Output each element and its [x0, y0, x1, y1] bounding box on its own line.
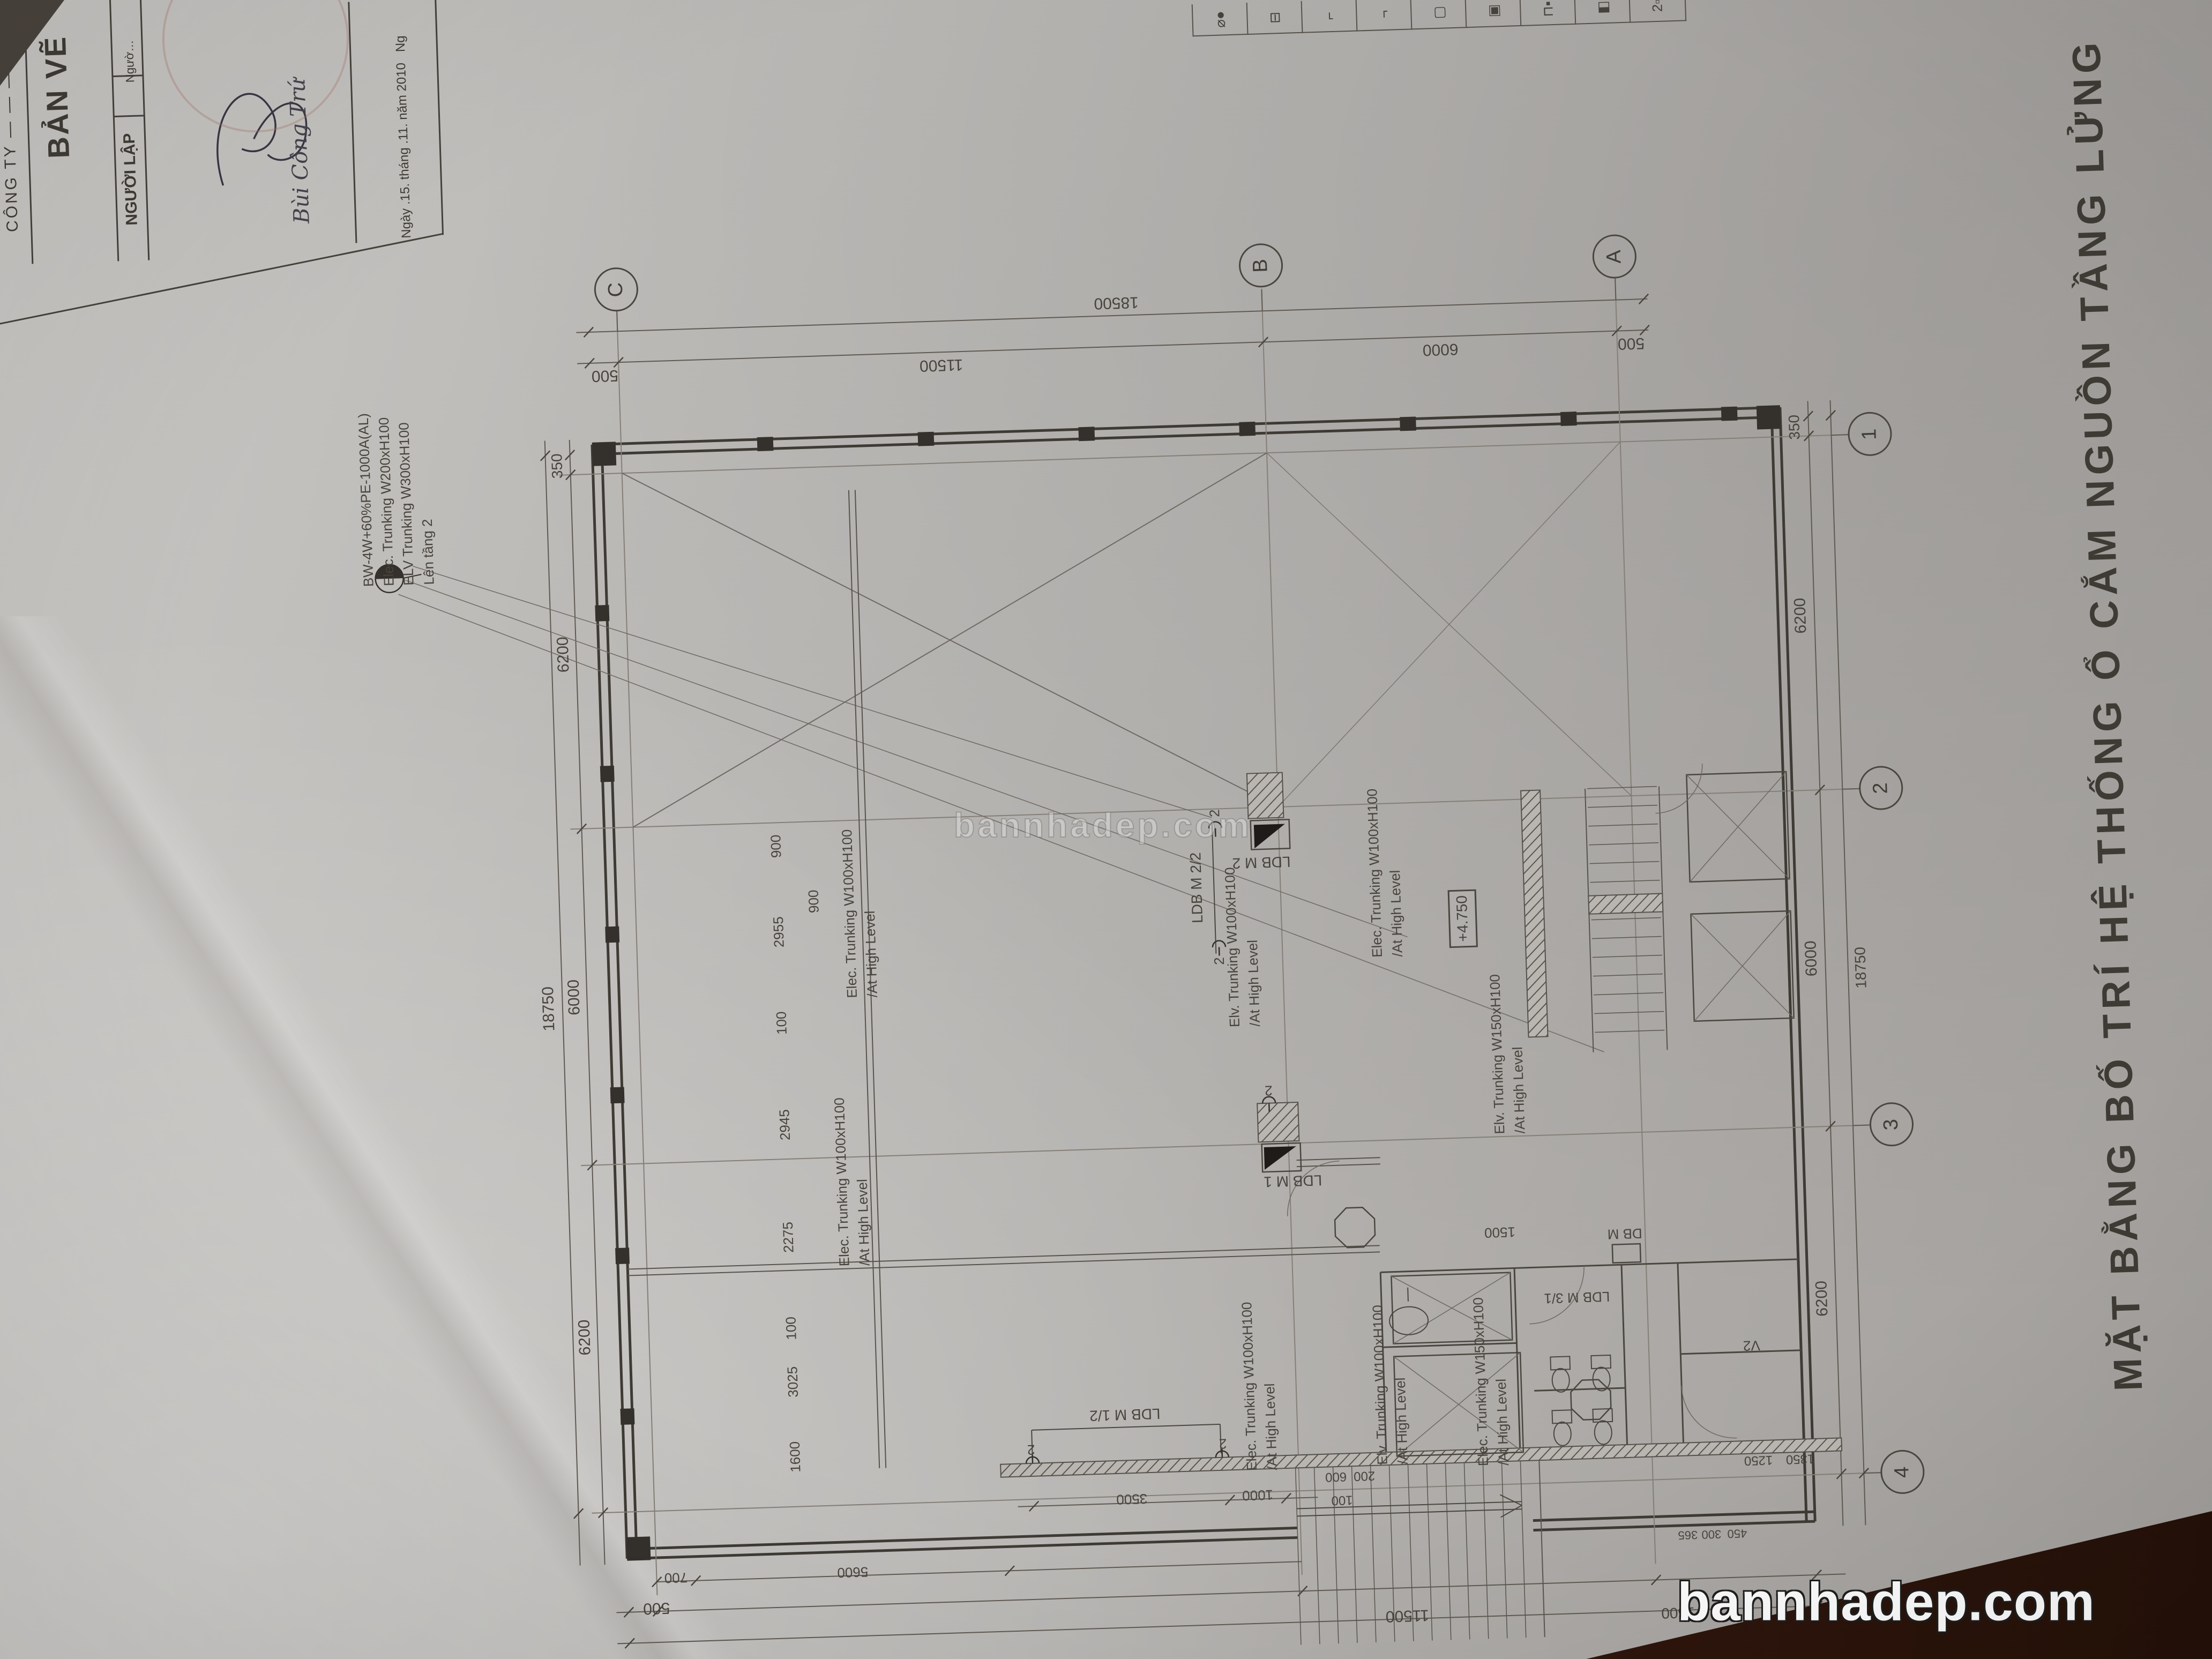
legend-cell: ▣ — [1464, 0, 1521, 28]
dim-or-annotation-label: 5600 — [837, 1561, 869, 1582]
dim-or-annotation-label: Elec. Trunking W100xH100 /At High Level — [837, 828, 883, 998]
legend-symbol-icon: 2▫ — [1649, 0, 1666, 12]
dim-or-annotation-label: LDB M 2/2 — [1185, 852, 1209, 923]
dim-or-annotation-label: LDB M 3/1 — [1544, 1286, 1610, 1309]
dim-or-annotation-label: 3025 — [782, 1366, 803, 1398]
dim-or-annotation-label: 11500 — [1385, 1603, 1430, 1628]
dim-or-annotation-label: 2275 — [778, 1221, 799, 1253]
dim-or-annotation-label: 2 — [1209, 957, 1230, 966]
dim-or-annotation-label: Elec. Trunking W100xH100 /At High Level — [829, 1097, 875, 1267]
dim-or-annotation-label: 100 — [772, 1011, 793, 1035]
legend-symbol-icon: ⌐ — [1321, 11, 1338, 20]
dim-or-annotation-label: 100 — [1331, 1490, 1353, 1509]
dim-or-annotation-label: 2945 — [774, 1109, 795, 1141]
dim-or-annotation-label: Elv. Trunking W100xH100 /At High Level — [1220, 866, 1266, 1028]
dim-or-annotation-label: 900 — [803, 890, 824, 914]
signature-name: Bùi Công Trứ — [282, 78, 317, 224]
grid-bubble-label: 3 — [1880, 1118, 1903, 1130]
dim-or-annotation-label: 200 — [1354, 1466, 1376, 1485]
grid-bubble-label: 2 — [1869, 782, 1893, 794]
dim-or-annotation-label: Elec. Trunking W150xH100 /At High Level — [1468, 1296, 1514, 1466]
dim-or-annotation-label: 1250 — [1744, 1450, 1773, 1469]
dim-or-annotation-label: 2955 — [768, 916, 789, 948]
dim-or-annotation-label: 500 — [643, 1596, 670, 1620]
legend-symbol-icon: ⊓▪ — [1540, 1, 1557, 17]
dim-or-annotation-label: 100 — [781, 1317, 802, 1341]
dim-or-annotation-label: 500 — [591, 363, 618, 387]
dim-or-annotation-label: 11500 — [919, 353, 963, 377]
dim-or-annotation-label: 6000 — [1799, 940, 1824, 977]
dim-or-annotation-label: 1000 — [1242, 1484, 1274, 1505]
watermark-corner: bannhadep.com — [1677, 1572, 2095, 1633]
dim-or-annotation-label: 2 — [1219, 1433, 1227, 1454]
dim-or-annotation-label: 6200 — [551, 637, 576, 673]
dim-or-annotation-label: 700 — [664, 1567, 688, 1588]
dim-or-annotation-label: LDB M 2 — [1232, 850, 1291, 874]
legend-cell: ⊓▪ — [1519, 0, 1576, 26]
grid-bubble-label: 4 — [1891, 1466, 1915, 1478]
dim-or-annotation-label: 1350 — [1785, 1449, 1814, 1468]
legend-symbol-icon: ¬ — [1376, 10, 1393, 18]
dim-or-annotation-label: 350 — [546, 453, 569, 479]
dim-or-annotation-label: 6000 — [1422, 337, 1459, 362]
dim-or-annotation-label: Elv. Trunking W100xH100 /At High Level — [1367, 1304, 1413, 1465]
legend-cell: 2▫ — [1628, 0, 1686, 23]
dim-or-annotation-label: Elec. Trunking W100xH100 /At High Level — [1362, 788, 1408, 958]
dim-or-annotation-label: 6200 — [1810, 1280, 1834, 1317]
dim-or-annotation-label: 18750 — [536, 986, 561, 1032]
dim-or-annotation-label: 18500 — [1094, 290, 1139, 315]
legend-symbol-icon: ▣ — [1485, 4, 1502, 18]
dim-or-annotation-label: 2 — [1265, 1080, 1273, 1101]
dim-or-annotation-label: 18750 — [1849, 946, 1872, 989]
legend-cell: ¬ — [1356, 0, 1413, 32]
small-label: Ngườ… — [121, 40, 139, 83]
legend-cell: ◧ — [1574, 0, 1631, 25]
grid-bubble-label: 1 — [1858, 428, 1882, 440]
dim-or-annotation-label: 6000 — [562, 979, 587, 1015]
dim-or-annotation-label: 365 — [1678, 1526, 1698, 1544]
dim-or-annotation-label: 350 — [1783, 414, 1806, 440]
dim-or-annotation-label: 500 — [1617, 331, 1645, 355]
dim-or-annotation-label: Elec. Trunking W100xH100 /At High Level — [1237, 1301, 1282, 1471]
dim-or-annotation-label: 3500 — [1116, 1488, 1148, 1509]
note-block: BW-4W+60%PE-1000A(AL) Elec. Trunking W20… — [354, 411, 440, 587]
dim-or-annotation-label: 1600 — [785, 1441, 806, 1473]
dim-or-annotation-label: +4.750 — [1448, 889, 1478, 948]
dim-or-annotation-label: LDB M 1/2 — [1089, 1402, 1161, 1426]
photo-of-drawing: 5001150060005001850035062006000620018750… — [0, 0, 2212, 1659]
dim-or-annotation-label: 600 — [1325, 1467, 1347, 1486]
legend-symbol-icon: ▢ — [1431, 5, 1448, 19]
dim-or-annotation-label: LDB M 1 — [1264, 1169, 1322, 1192]
legend-symbol-icon: ◧ — [1594, 0, 1611, 14]
watermark-center: bannhadep.com — [954, 805, 1252, 845]
legend-cell: ▢ — [1410, 0, 1467, 29]
grid-bubble-label: A — [1603, 249, 1626, 264]
dim-or-annotation-label: 300 — [1701, 1526, 1722, 1543]
dim-or-annotation-label: Elv. Trunking W150xH100 /At High Level — [1485, 973, 1530, 1134]
dim-or-annotation-label: 2 — [1027, 1439, 1035, 1460]
dim-or-annotation-label: 900 — [766, 834, 787, 858]
drawing-title-label: BẢN VẼ — [33, 35, 80, 159]
legend-cell: ⊟ — [1246, 1, 1303, 35]
dim-or-annotation-label: 6200 — [573, 1319, 597, 1356]
dim-or-annotation-label: DB M — [1607, 1223, 1642, 1244]
legend-cell: ⌐ — [1301, 0, 1358, 33]
legend-cell: ⌀● — [1192, 3, 1249, 36]
dim-or-annotation-label: V2 — [1743, 1335, 1760, 1356]
grid-bubble-label: B — [1249, 258, 1273, 273]
legend-symbol-icon: ⊟ — [1267, 11, 1284, 24]
dim-or-annotation-label: 6200 — [1788, 597, 1813, 634]
legend-symbol-icon: ⌀● — [1212, 10, 1229, 27]
maker-label: NGƯỜI LẬP — [118, 133, 144, 226]
dim-or-annotation-label: 1500 — [1484, 1222, 1515, 1243]
grid-bubble-label: C — [604, 282, 628, 297]
dim-or-annotation-label: 450 — [1727, 1525, 1747, 1542]
